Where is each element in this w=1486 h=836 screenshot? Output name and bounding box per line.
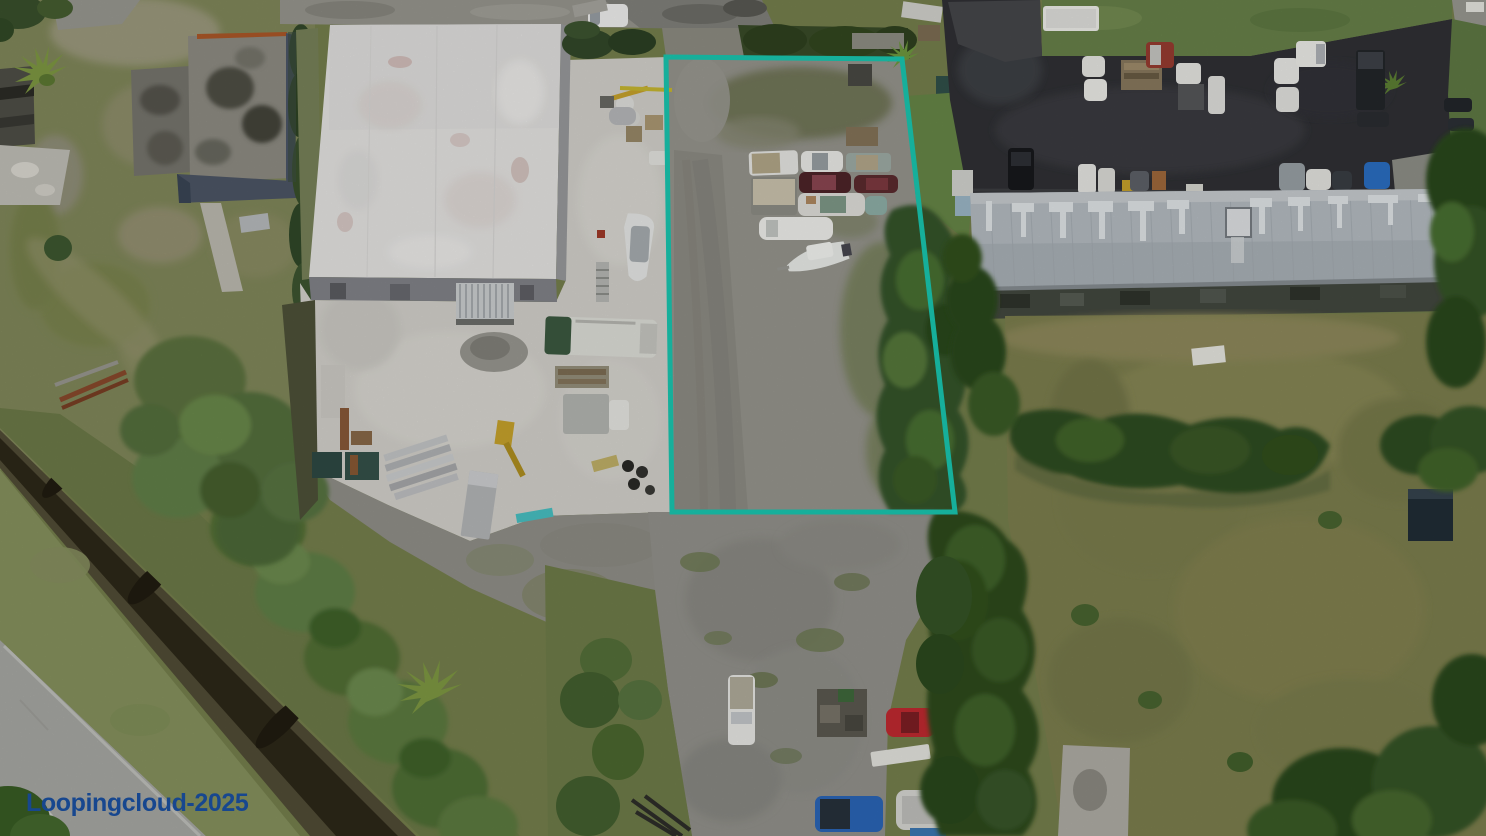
svg-text:Loopingcloud-2025: Loopingcloud-2025 [26,789,249,817]
